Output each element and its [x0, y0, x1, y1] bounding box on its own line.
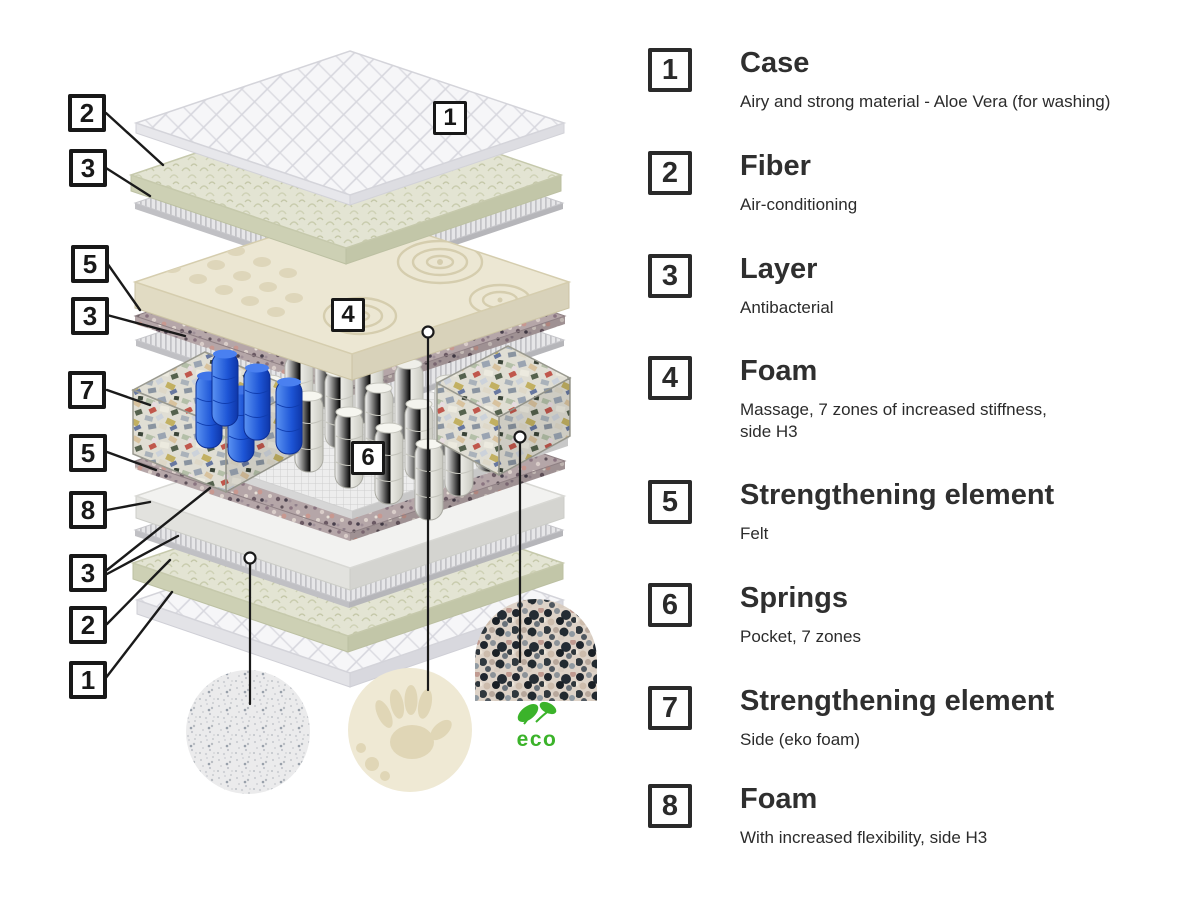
- legend-item-strengthening-felt: 5 Strengthening element Felt: [648, 480, 1160, 545]
- legend-item-fiber: 2 Fiber Air-conditioning: [648, 151, 1160, 216]
- callout-box-layer-bottom: 3: [69, 554, 107, 592]
- legend-description: Airy and strong material - Aloe Vera (fo…: [740, 91, 1160, 113]
- legend-title: Strengthening element: [740, 686, 1160, 718]
- legend-description: With increased flexibility, side H3: [740, 827, 1160, 849]
- callout-box-layer-mid: 3: [71, 297, 109, 335]
- callout-box-foam-flex: 8: [69, 491, 107, 529]
- legend-number-box: 7: [648, 686, 692, 730]
- callout-box-foam-massage: 4: [331, 298, 365, 332]
- legend-number-box: 2: [648, 151, 692, 195]
- legend-description: Felt: [740, 523, 1160, 545]
- callout-box-felt-lower: 5: [69, 434, 107, 472]
- legend-description: Massage, 7 zones of increased stiffness,…: [740, 399, 1160, 443]
- legend-number-box: 4: [648, 356, 692, 400]
- legend-item-springs: 6 Springs Pocket, 7 zones: [648, 583, 1160, 648]
- legend-item-layer: 3 Layer Antibacterial: [648, 254, 1160, 319]
- legend-description: Side (eko foam): [740, 729, 1160, 751]
- detail-circle-memory-foam: [348, 668, 472, 792]
- callout-box-springs: 6: [351, 441, 385, 475]
- eco-label: eco: [517, 728, 558, 751]
- legend-number-box: 3: [648, 254, 692, 298]
- legend-item-foam-massage: 4 Foam Massage, 7 zones of increased sti…: [648, 356, 1160, 443]
- callout-box-case-bottom: 1: [69, 661, 107, 699]
- legend-number-box: 6: [648, 583, 692, 627]
- legend-title: Case: [740, 48, 1160, 80]
- legend-number-box: 1: [648, 48, 692, 92]
- callout-box-side-element: 7: [68, 371, 106, 409]
- legend-title: Foam: [740, 784, 1160, 816]
- legend-number-box: 8: [648, 784, 692, 828]
- detail-circle-foam-speckle: [186, 670, 310, 794]
- legend-number-box: 5: [648, 480, 692, 524]
- callout-box-fiber-bottom: 2: [69, 606, 107, 644]
- legend-title: Springs: [740, 583, 1160, 615]
- legend-description: Pocket, 7 zones: [740, 626, 1160, 648]
- legend-title: Foam: [740, 356, 1160, 388]
- legend-title: Layer: [740, 254, 1160, 286]
- callout-box-felt-upper: 5: [71, 245, 109, 283]
- eco-leaves-icon: [515, 699, 559, 725]
- legend-item-foam-flex: 8 Foam With increased flexibility, side …: [648, 784, 1160, 849]
- legend-item-case: 1 Case Airy and strong material - Aloe V…: [648, 48, 1160, 113]
- legend-description: Air-conditioning: [740, 194, 1160, 216]
- callout-box-case-top: 1: [433, 101, 467, 135]
- eco-badge: eco: [515, 699, 559, 751]
- mattress-structure-diagram: eco 2 3 5 3 7 5 8 3 2 1: [0, 0, 1200, 899]
- callout-box-layer-top: 3: [69, 149, 107, 187]
- legend-item-strengthening-side: 7 Strengthening element Side (eko foam): [648, 686, 1160, 751]
- callout-box-fiber-top: 2: [68, 94, 106, 132]
- legend-title: Fiber: [740, 151, 1160, 183]
- legend-description: Antibacterial: [740, 297, 1160, 319]
- legend-title: Strengthening element: [740, 480, 1160, 512]
